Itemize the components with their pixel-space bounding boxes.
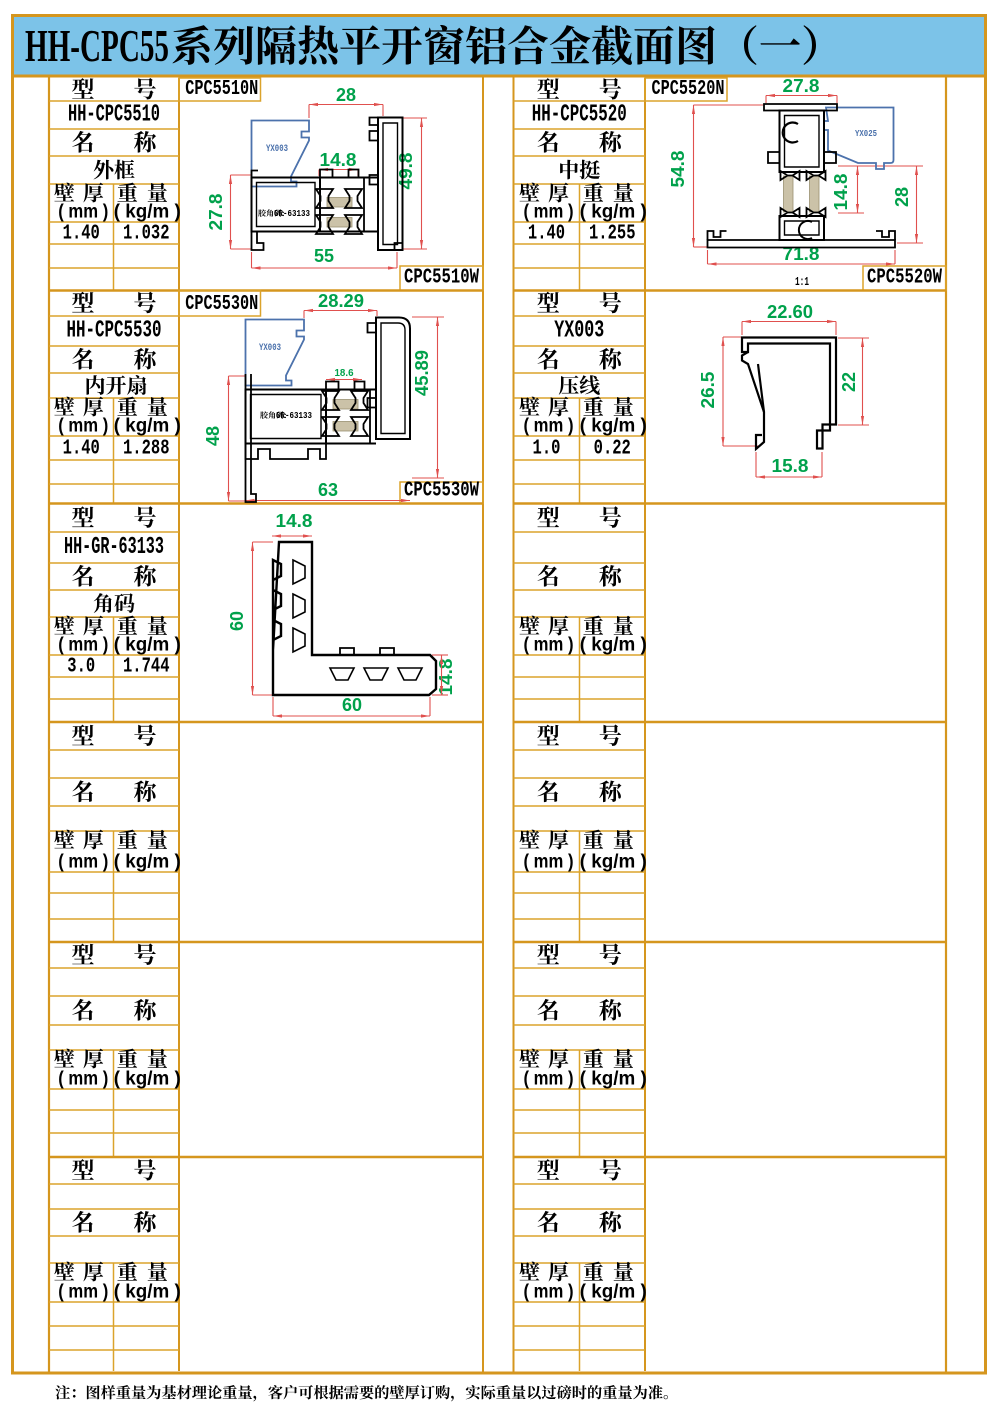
svg-text:28.29: 28.29 xyxy=(318,291,364,311)
svg-text:1.032: 1.032 xyxy=(123,223,170,246)
svg-text:22.60: 22.60 xyxy=(767,302,813,322)
svg-text:( mm ): ( mm ) xyxy=(524,202,574,223)
svg-text:( kg/m ): ( kg/m ) xyxy=(580,1069,647,1090)
svg-text:HH-GR-63133: HH-GR-63133 xyxy=(64,534,164,561)
svg-text:( mm ): ( mm ) xyxy=(524,1069,574,1090)
svg-text:14.8: 14.8 xyxy=(436,659,456,696)
svg-text:HH-CPC5510: HH-CPC5510 xyxy=(68,102,160,129)
svg-text:15.8: 15.8 xyxy=(772,456,809,476)
svg-text:18.6: 18.6 xyxy=(335,368,354,379)
svg-text:CPC5510W: CPC5510W xyxy=(404,267,479,290)
svg-text:54.8: 54.8 xyxy=(668,151,688,188)
svg-text:14.8: 14.8 xyxy=(320,150,357,170)
svg-text:( mm ): ( mm ) xyxy=(58,416,108,437)
svg-text:YX025: YX025 xyxy=(855,129,877,139)
svg-text:( kg/m ): ( kg/m ) xyxy=(580,635,647,656)
svg-text:1.40: 1.40 xyxy=(63,223,100,246)
svg-text:14.8: 14.8 xyxy=(276,511,313,531)
svg-text:YX003: YX003 xyxy=(259,343,281,354)
svg-text:GR-63133: GR-63133 xyxy=(274,209,310,219)
svg-text:55: 55 xyxy=(314,246,334,266)
svg-text:1.40: 1.40 xyxy=(63,438,100,461)
svg-text:27.8: 27.8 xyxy=(206,194,226,231)
svg-text:60: 60 xyxy=(342,695,362,715)
svg-text:14.8: 14.8 xyxy=(831,174,851,211)
svg-text:1:1: 1:1 xyxy=(795,275,809,289)
svg-text:( kg/m ): ( kg/m ) xyxy=(580,202,647,223)
svg-text:( kg/m ): ( kg/m ) xyxy=(114,416,181,437)
svg-text:0.22: 0.22 xyxy=(594,438,631,461)
svg-text:CPC5510N: CPC5510N xyxy=(185,78,258,101)
svg-text:( mm ): ( mm ) xyxy=(524,635,574,656)
svg-text:( kg/m ): ( kg/m ) xyxy=(580,852,647,873)
svg-text:HH-CPC55: HH-CPC55 xyxy=(25,20,169,71)
svg-text:( mm ): ( mm ) xyxy=(58,852,108,873)
svg-text:YX003: YX003 xyxy=(266,144,288,155)
svg-text:1.255: 1.255 xyxy=(589,223,636,246)
svg-text:CPC5520N: CPC5520N xyxy=(652,78,725,101)
svg-text:( kg/m ): ( kg/m ) xyxy=(114,635,181,656)
svg-text:60: 60 xyxy=(227,611,247,631)
svg-text:26.5: 26.5 xyxy=(698,372,718,409)
svg-text:HH-CPC5520: HH-CPC5520 xyxy=(532,102,627,129)
svg-text:( kg/m ): ( kg/m ) xyxy=(580,416,647,437)
svg-text:22: 22 xyxy=(839,372,859,392)
svg-text:( kg/m ): ( kg/m ) xyxy=(114,1282,181,1303)
svg-text:( kg/m ): ( kg/m ) xyxy=(580,1282,647,1303)
svg-text:27.8: 27.8 xyxy=(783,76,820,96)
svg-text:HH-CPC5530: HH-CPC5530 xyxy=(67,318,162,345)
svg-text:3.0: 3.0 xyxy=(67,656,95,679)
svg-text:63: 63 xyxy=(318,480,338,500)
svg-text:CPC5530N: CPC5530N xyxy=(185,293,258,316)
svg-text:( kg/m ): ( kg/m ) xyxy=(114,202,181,223)
svg-text:( mm ): ( mm ) xyxy=(524,416,574,437)
svg-text:( mm ): ( mm ) xyxy=(524,852,574,873)
svg-text:( mm ): ( mm ) xyxy=(58,1069,108,1090)
svg-text:( mm ): ( mm ) xyxy=(58,635,108,656)
svg-text:48: 48 xyxy=(203,426,223,446)
svg-text:45.89: 45.89 xyxy=(412,350,432,396)
svg-text:CPC5520W: CPC5520W xyxy=(867,267,942,290)
svg-text:GR-63133: GR-63133 xyxy=(276,411,312,421)
svg-text:1.40: 1.40 xyxy=(528,223,565,246)
svg-text:YX003: YX003 xyxy=(554,318,604,345)
svg-text:( mm ): ( mm ) xyxy=(58,1282,108,1303)
svg-text:( kg/m ): ( kg/m ) xyxy=(114,852,181,873)
svg-text:28: 28 xyxy=(892,187,912,207)
svg-text:( mm ): ( mm ) xyxy=(524,1282,574,1303)
svg-text:( mm ): ( mm ) xyxy=(58,202,108,223)
svg-text:49.8: 49.8 xyxy=(396,153,416,190)
svg-text:1.744: 1.744 xyxy=(123,656,170,679)
svg-text:1.288: 1.288 xyxy=(123,438,170,461)
svg-text:1.0: 1.0 xyxy=(533,438,561,461)
svg-text:CPC5530W: CPC5530W xyxy=(404,480,479,503)
svg-text:( kg/m ): ( kg/m ) xyxy=(114,1069,181,1090)
svg-text:28: 28 xyxy=(336,85,356,105)
